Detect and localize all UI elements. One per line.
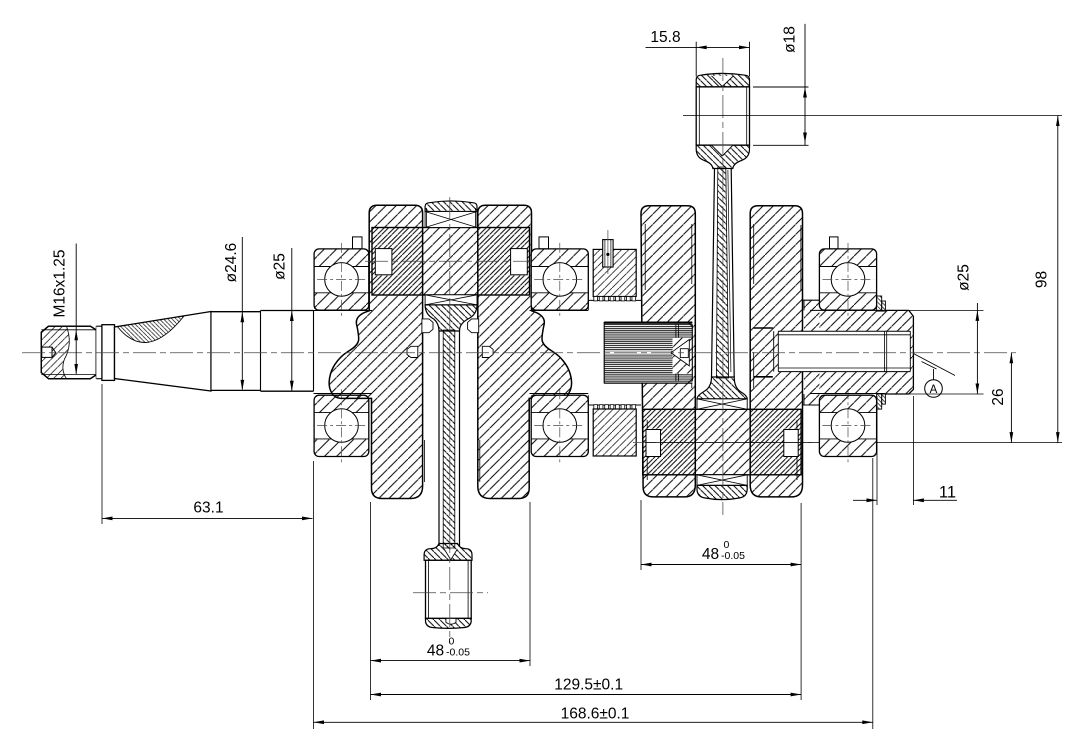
svg-text:129.5±0.1: 129.5±0.1 [554,677,623,694]
svg-text:ø25: ø25 [272,253,289,280]
svg-text:98: 98 [1034,271,1051,288]
svg-text:26: 26 [990,388,1007,405]
svg-text:ø25: ø25 [956,264,973,291]
svg-text:ø18: ø18 [782,26,799,53]
svg-text:63.1: 63.1 [193,500,223,517]
svg-text:-0.05: -0.05 [446,647,470,659]
svg-text:-0.05: -0.05 [721,550,745,562]
svg-text:ø24.6: ø24.6 [223,243,240,283]
svg-text:11: 11 [939,484,956,502]
svg-text:48: 48 [702,546,719,563]
svg-text:48: 48 [427,643,444,660]
svg-text:M16x1.25: M16x1.25 [52,249,69,317]
svg-text:168.6±0.1: 168.6±0.1 [561,706,630,723]
svg-text:15.8: 15.8 [650,29,680,46]
